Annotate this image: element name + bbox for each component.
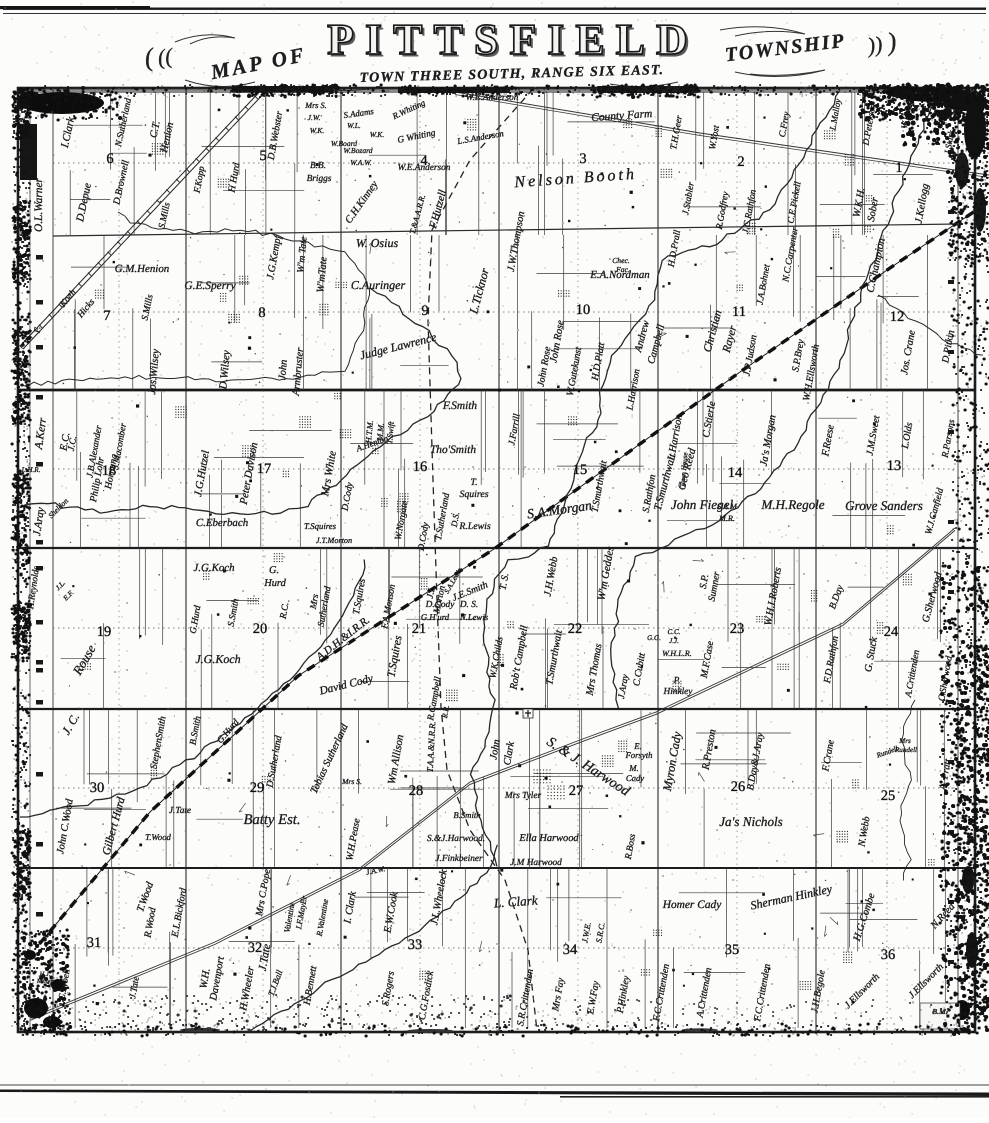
svg-text:John: John [277, 359, 290, 380]
svg-text:W.E.Anderson: W.E.Anderson [398, 163, 451, 173]
svg-text:14: 14 [728, 465, 743, 481]
svg-text:W.K.: W.K. [310, 126, 325, 135]
svg-text:M.R.: M.R. [718, 514, 735, 523]
svg-text:Mrs: Mrs [898, 737, 911, 745]
svg-text:G.M.Henion: G.M.Henion [115, 263, 169, 275]
svg-text:F.: F. [31, 326, 42, 335]
svg-text:20: 20 [253, 621, 268, 637]
svg-text:Briggs: Briggs [307, 174, 332, 184]
svg-text:M.: M. [628, 763, 638, 773]
svg-text:24: 24 [884, 624, 899, 640]
svg-text:C.C.: C.C. [667, 628, 680, 636]
svg-text:W.A.W.: W.A.W. [350, 158, 372, 167]
svg-text:M.H.Regole: M.H.Regole [760, 497, 824, 512]
svg-text:Homer Cady: Homer Cady [662, 899, 722, 911]
svg-text:Mrs Tyler: Mrs Tyler [504, 791, 542, 801]
svg-text:23: 23 [730, 621, 745, 637]
svg-text:W.K.: W.K. [370, 130, 385, 139]
svg-text:36: 36 [881, 947, 896, 963]
svg-text:Grove Sanders: Grove Sanders [845, 498, 923, 513]
svg-text:Chec.: Chec. [612, 256, 630, 265]
svg-text:P.: P. [673, 676, 681, 686]
svg-text:2: 2 [737, 154, 744, 170]
svg-text:1: 1 [895, 160, 902, 176]
svg-text:D.Cody: D.Cody [425, 600, 456, 610]
svg-text:11: 11 [732, 304, 746, 320]
svg-text:Fac.: Fac. [615, 265, 630, 274]
svg-text:C.Auringer: C.Auringer [351, 278, 406, 292]
svg-text:3: 3 [579, 151, 586, 167]
svg-text:22: 22 [568, 621, 583, 637]
svg-text:J.Finkbeiner: J.Finkbeiner [435, 854, 483, 864]
svg-text:30: 30 [90, 780, 105, 796]
svg-text:J.M Harwood: J.M Harwood [510, 858, 562, 868]
svg-text:J.T.Morton: J.T.Morton [316, 536, 352, 545]
svg-text:21: 21 [412, 621, 427, 637]
svg-text:O.L.Warner: O.L.Warner [33, 177, 45, 232]
svg-text:W.H.L.R.: W.H.L.R. [662, 649, 692, 658]
svg-text:Tho'Smith: Tho'Smith [430, 444, 476, 456]
svg-text:Squires: Squires [459, 489, 488, 500]
svg-text:31: 31 [87, 935, 102, 951]
svg-text:13: 13 [887, 458, 902, 474]
svg-text:T.Wood: T.Wood [145, 832, 171, 842]
svg-text:15: 15 [573, 462, 588, 478]
svg-text:G.H'urd: G.H'urd [421, 612, 450, 622]
svg-text:R.Lewis: R.Lewis [458, 521, 490, 532]
svg-text:F.Smith: F.Smith [442, 400, 478, 412]
svg-text:26: 26 [731, 779, 746, 795]
svg-text:12: 12 [890, 309, 905, 325]
svg-text:25: 25 [881, 788, 896, 804]
svg-text:W. Osius: W. Osius [356, 236, 399, 250]
svg-text:35: 35 [725, 942, 740, 958]
svg-text:Ella Harwood: Ella Harwood [518, 833, 579, 844]
svg-text:28: 28 [409, 783, 424, 799]
svg-text:G.E.Sperry: G.E.Sperry [184, 280, 236, 292]
svg-text:Forsyth: Forsyth [624, 750, 652, 760]
svg-text:G.: G. [269, 565, 279, 576]
svg-text:10: 10 [576, 302, 591, 318]
svg-text:W.L.: W.L. [347, 121, 361, 130]
svg-text:Hurd: Hurd [263, 578, 286, 589]
svg-text:34: 34 [563, 942, 578, 958]
svg-text:B.Smith: B.Smith [453, 810, 480, 820]
svg-text:T.: T. [470, 477, 477, 488]
svg-text:W.Board: W.Board [331, 139, 357, 148]
svg-text:16: 16 [413, 459, 428, 475]
svg-text:Ja's Nichols: Ja's Nichols [719, 814, 783, 829]
svg-text:27: 27 [569, 783, 584, 799]
svg-text:J.Tate: J.Tate [169, 806, 191, 816]
svg-text:D. S.: D. S. [459, 600, 478, 610]
svg-text:6: 6 [106, 151, 113, 167]
svg-text:T.Squires: T.Squires [304, 521, 337, 531]
svg-text:7: 7 [103, 308, 110, 324]
svg-text:8: 8 [258, 305, 265, 321]
svg-text:J.W.: J.W. [308, 113, 321, 122]
svg-text:J.G.Koch: J.G.Koch [195, 652, 240, 666]
svg-text:C.Eberbach: C.Eberbach [196, 517, 248, 529]
svg-text:G.G.: G.G. [647, 634, 661, 642]
svg-text:S.&J.Harwood.: S.&J.Harwood. [427, 834, 485, 844]
svg-text:J.G.Koch: J.G.Koch [193, 562, 234, 574]
svg-text:Batty Est.: Batty Est. [243, 812, 300, 828]
svg-text:John Fiegel: John Fiegel [671, 497, 734, 512]
svg-text:PITTSFIELD: PITTSFIELD [327, 15, 699, 64]
svg-text:19: 19 [97, 624, 112, 640]
svg-text:17: 17 [257, 461, 272, 477]
svg-text:Mrs S.: Mrs S. [304, 101, 326, 110]
svg-text:L. Clark: L. Clark [492, 892, 538, 910]
svg-text:33: 33 [408, 937, 423, 953]
